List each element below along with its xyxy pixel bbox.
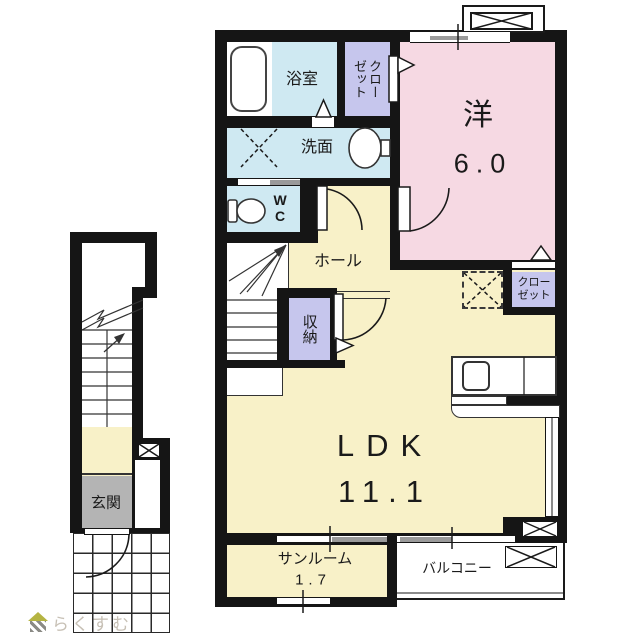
wall-storage-right: [330, 293, 337, 368]
entrance-hall-floor: [82, 427, 132, 476]
entrance-step-line: [82, 473, 132, 475]
storage-label: 収納: [300, 314, 317, 344]
sunroom-top-sash: [332, 537, 387, 542]
sunroom-size: 1.7: [295, 571, 331, 588]
annex-wall-ext-top: [143, 232, 157, 298]
washroom-slider: [270, 180, 302, 185]
wall-vent-box: [522, 521, 558, 537]
entrance-label: 玄関: [91, 494, 121, 511]
watermark-logo: [28, 612, 48, 632]
balcony-label: バルコニー: [422, 560, 492, 576]
sunroom-bottom-window: [277, 597, 330, 605]
western-closet-track: [510, 261, 555, 269]
logo-body-icon: [30, 621, 46, 632]
wc-label: WC: [272, 192, 288, 224]
wall-western-left: [390, 42, 400, 270]
meter-column: [135, 460, 160, 528]
annex-vent-box: [138, 443, 160, 458]
closet-ldk-label-line2: ゼット: [518, 290, 551, 303]
refrigerator-space: [462, 271, 503, 309]
stair-alcove: [227, 368, 283, 396]
hall-label: ホール: [314, 253, 362, 271]
ldk-label: LDK: [337, 428, 433, 464]
closet-top-label: クローゼット: [351, 60, 381, 99]
wall-closet-left: [337, 42, 345, 116]
logo-roof-icon: [28, 612, 48, 621]
kitchen-counter-edge: [451, 396, 507, 405]
ac-unit-inner: [470, 12, 533, 30]
wall-under-bath: [215, 116, 400, 128]
kitchen-sink: [462, 361, 490, 391]
washroom-label: 洗面: [301, 139, 333, 157]
wc-floor: [227, 186, 300, 232]
wall-stairs-bottom: [215, 360, 345, 368]
western-room-size: 6.0: [454, 148, 513, 179]
wall-wc-bottom: [215, 232, 318, 243]
western-room-label: 洋: [463, 99, 493, 134]
bathroom-label: 浴室: [286, 71, 318, 89]
bath-door-gap: [312, 117, 334, 127]
balcony-slider-sash: [400, 537, 452, 542]
watermark-text: らくすむ: [52, 610, 132, 635]
entrance-door-leaf: [84, 528, 130, 535]
ldk-east-window: [545, 417, 559, 517]
kitchen-lower-counter: [451, 405, 560, 418]
closet-ldk-label-line1: クロー: [518, 277, 551, 290]
stairwell: [82, 287, 132, 427]
balcony-equipment-box: [505, 546, 557, 568]
wall-ldk-closet-bottom: [503, 307, 567, 315]
ldk-size: 11.1: [338, 474, 432, 510]
wall-storage-left: [277, 288, 289, 368]
sunroom-label: サンルーム: [278, 550, 353, 567]
floor-plan: 浴室 クローゼット 洋 6.0 洗面 WC ホール 収納 クロー ゼット LDK…: [0, 0, 640, 640]
western-window-sash: [430, 36, 468, 40]
bathtub: [230, 46, 267, 112]
ldk-doorway-threshold: [337, 291, 390, 299]
stair-landing: [82, 243, 145, 287]
